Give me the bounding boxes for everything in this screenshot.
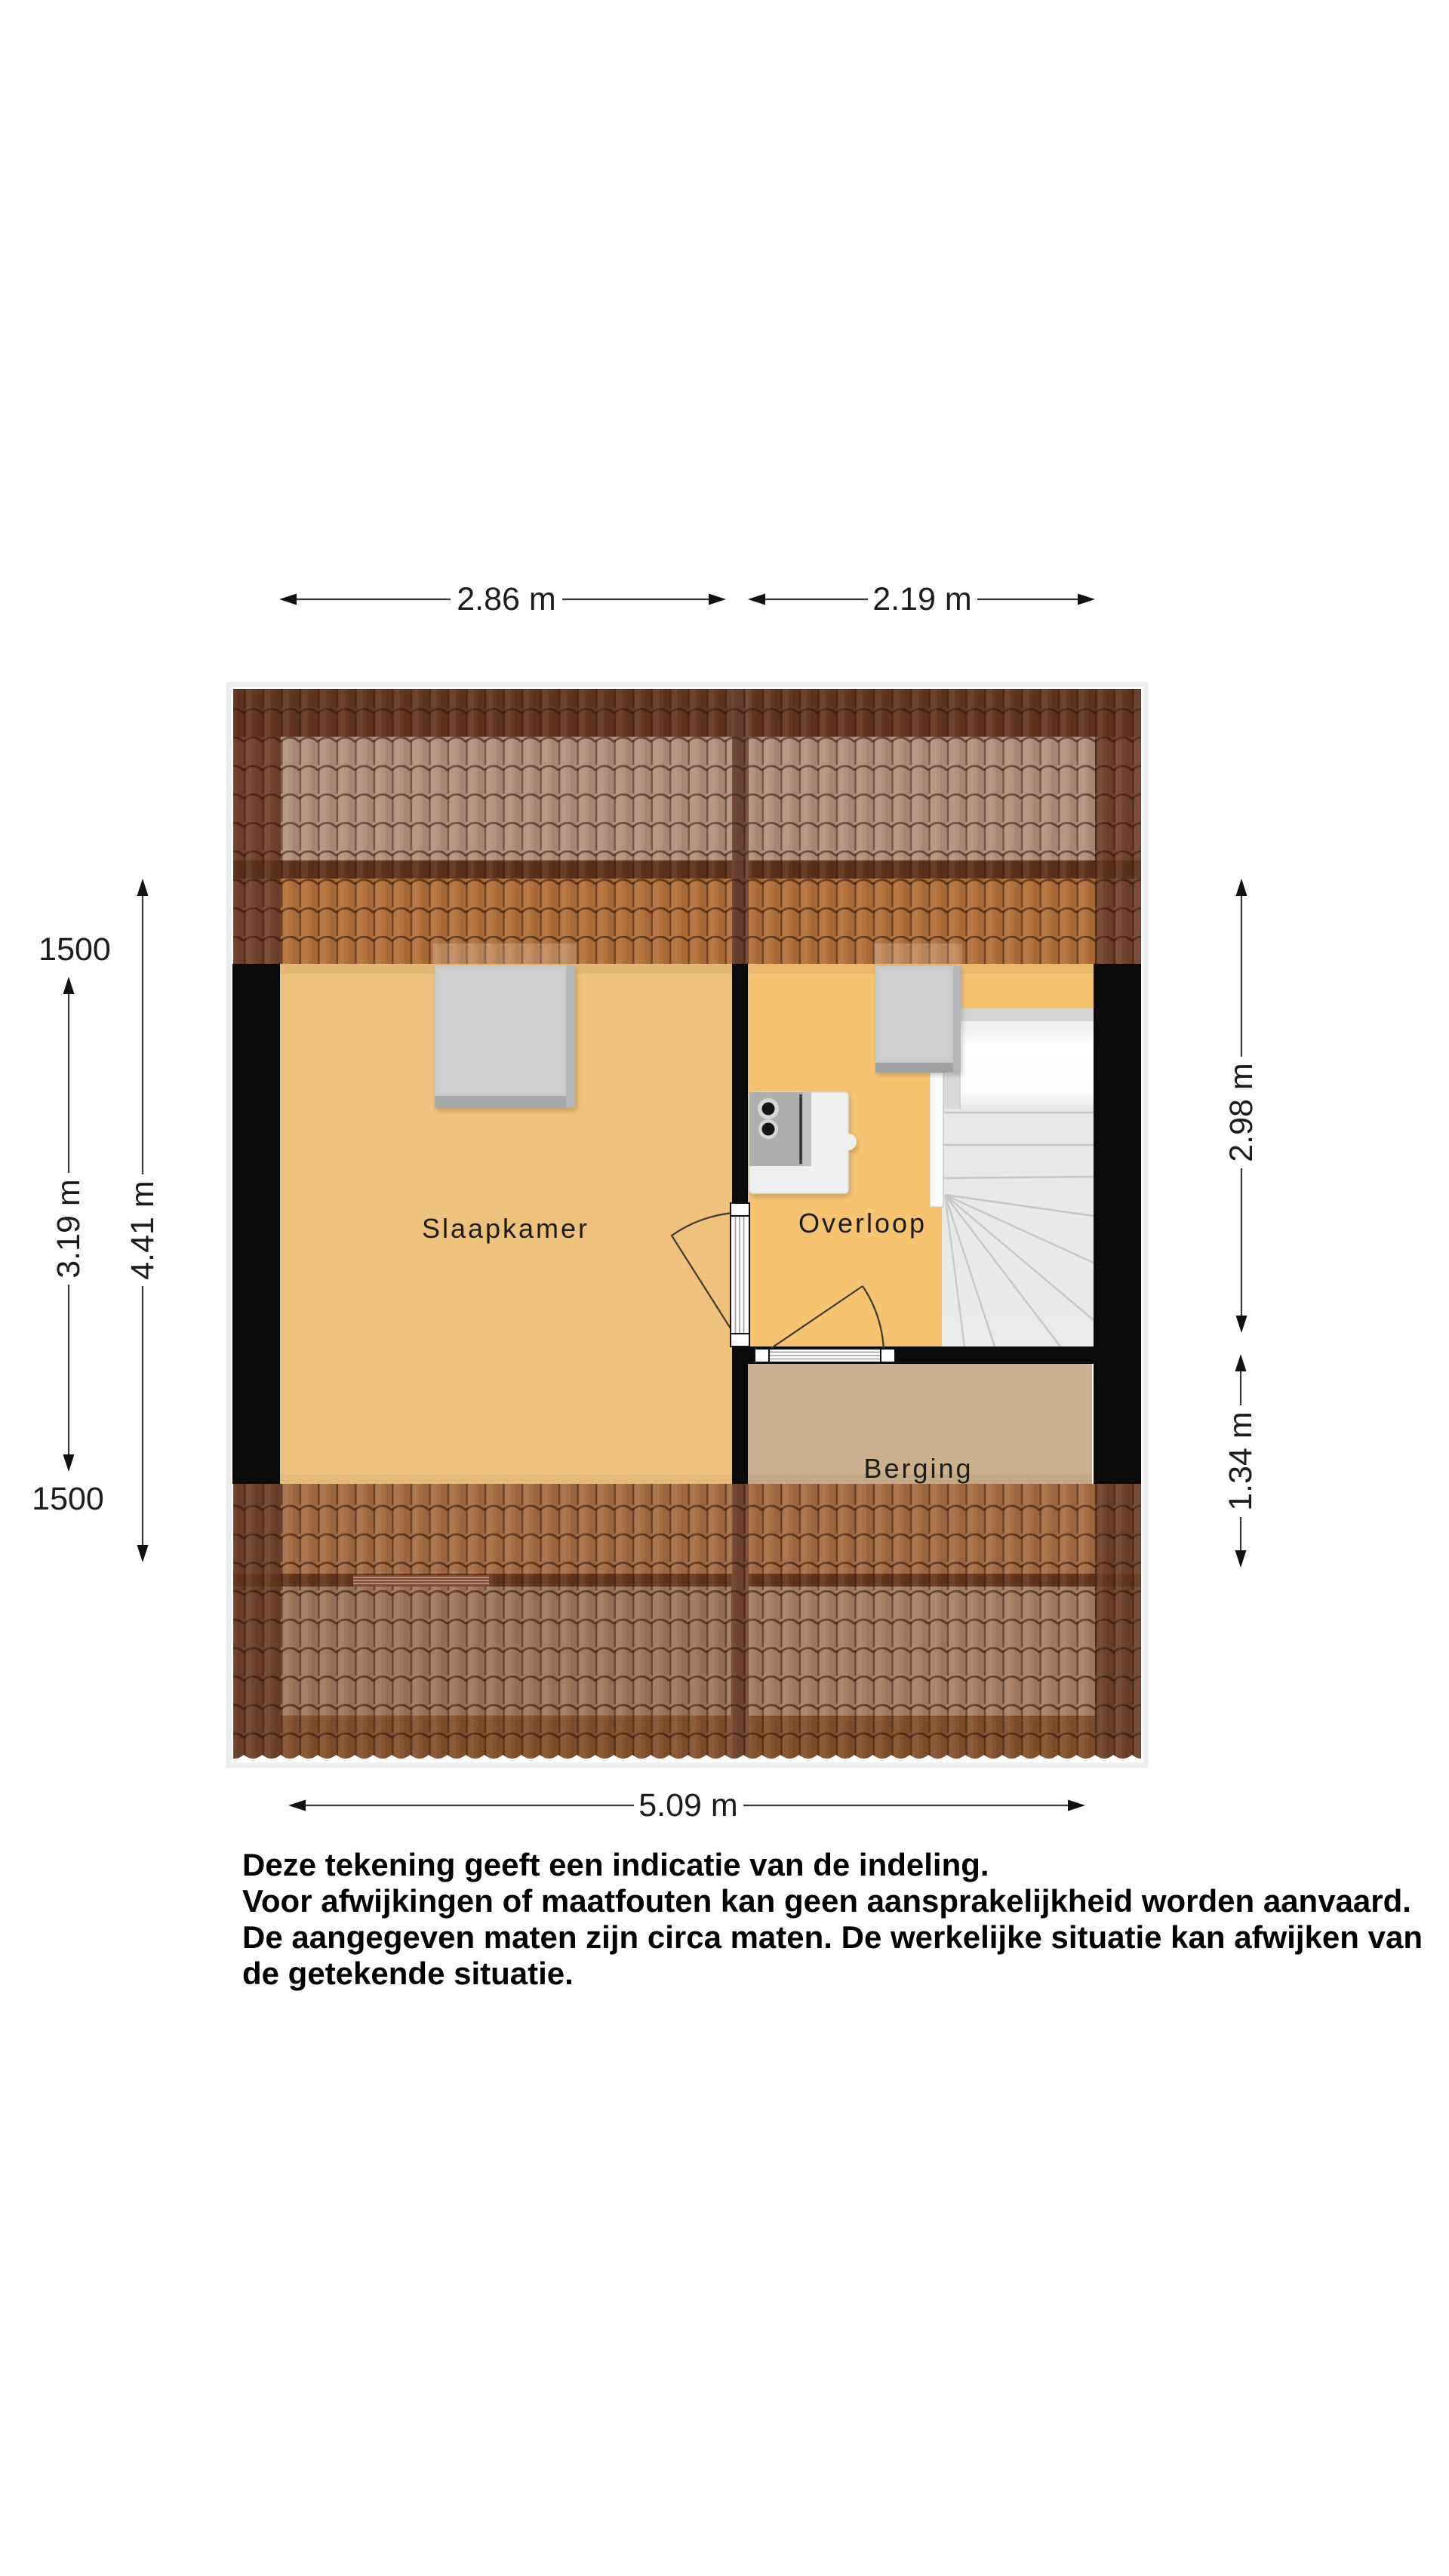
svg-text:3.19 m: 3.19 m [51,1179,87,1278]
svg-text:1500: 1500 [38,931,111,968]
svg-text:De aangegeven maten zijn circa: De aangegeven maten zijn circa maten. De… [242,1919,1423,1955]
svg-text:2.98 m: 2.98 m [1223,1063,1260,1162]
svg-text:4.41 m: 4.41 m [125,1180,161,1279]
svg-text:2.86 m: 2.86 m [457,581,555,617]
svg-text:5.09 m: 5.09 m [638,1787,737,1824]
svg-text:Deze tekening geeft een indica: Deze tekening geeft een indicatie van de… [242,1847,989,1882]
svg-text:1.34 m: 1.34 m [1223,1411,1259,1510]
svg-text:1500: 1500 [32,1481,104,1517]
svg-text:Overloop: Overloop [798,1208,927,1239]
svg-text:de getekende situatie.: de getekende situatie. [242,1956,574,1991]
svg-text:Slaapkamer: Slaapkamer [422,1213,589,1244]
svg-text:Voor afwijkingen of maatfoute: Voor afwijkingen of maatfouten kan geen … [242,1883,1411,1919]
svg-text:2.19 m: 2.19 m [872,581,971,617]
svg-text:Berging: Berging [863,1453,973,1484]
